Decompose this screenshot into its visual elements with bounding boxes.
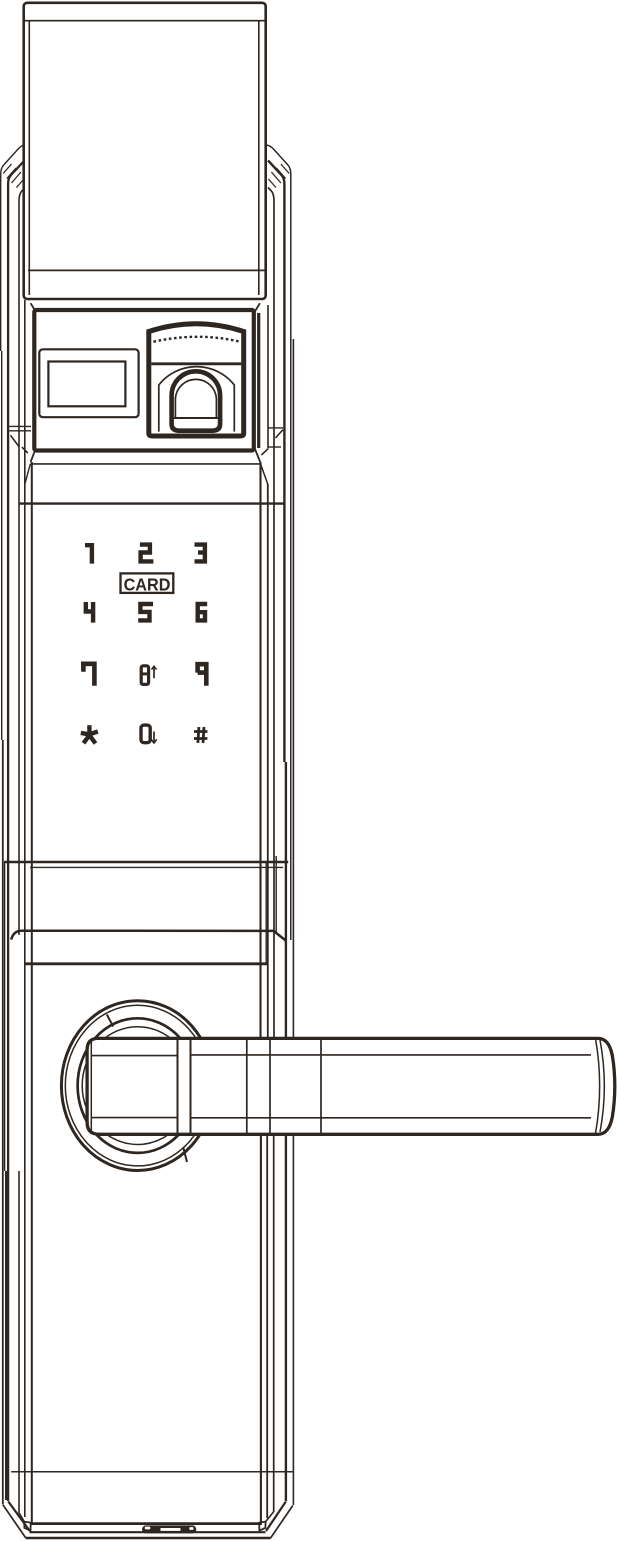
- svg-text:CARD: CARD: [124, 575, 171, 595]
